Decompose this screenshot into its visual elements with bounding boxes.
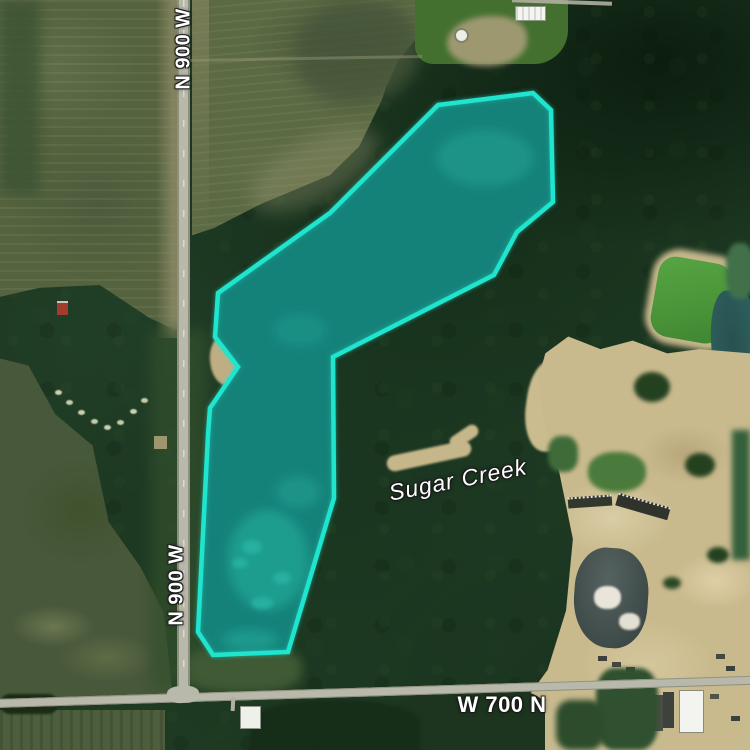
road-label-w700n: W 700 N <box>457 692 546 718</box>
satellite-map[interactable]: N 900 W N 900 W W 700 N Sugar Creek <box>0 0 750 750</box>
parcel-layer <box>0 0 750 750</box>
parcel-boundary[interactable] <box>198 93 553 655</box>
road-label-n900w-top: N 900 W <box>173 8 196 89</box>
road-label-n900w-bottom: N 900 W <box>166 544 189 625</box>
